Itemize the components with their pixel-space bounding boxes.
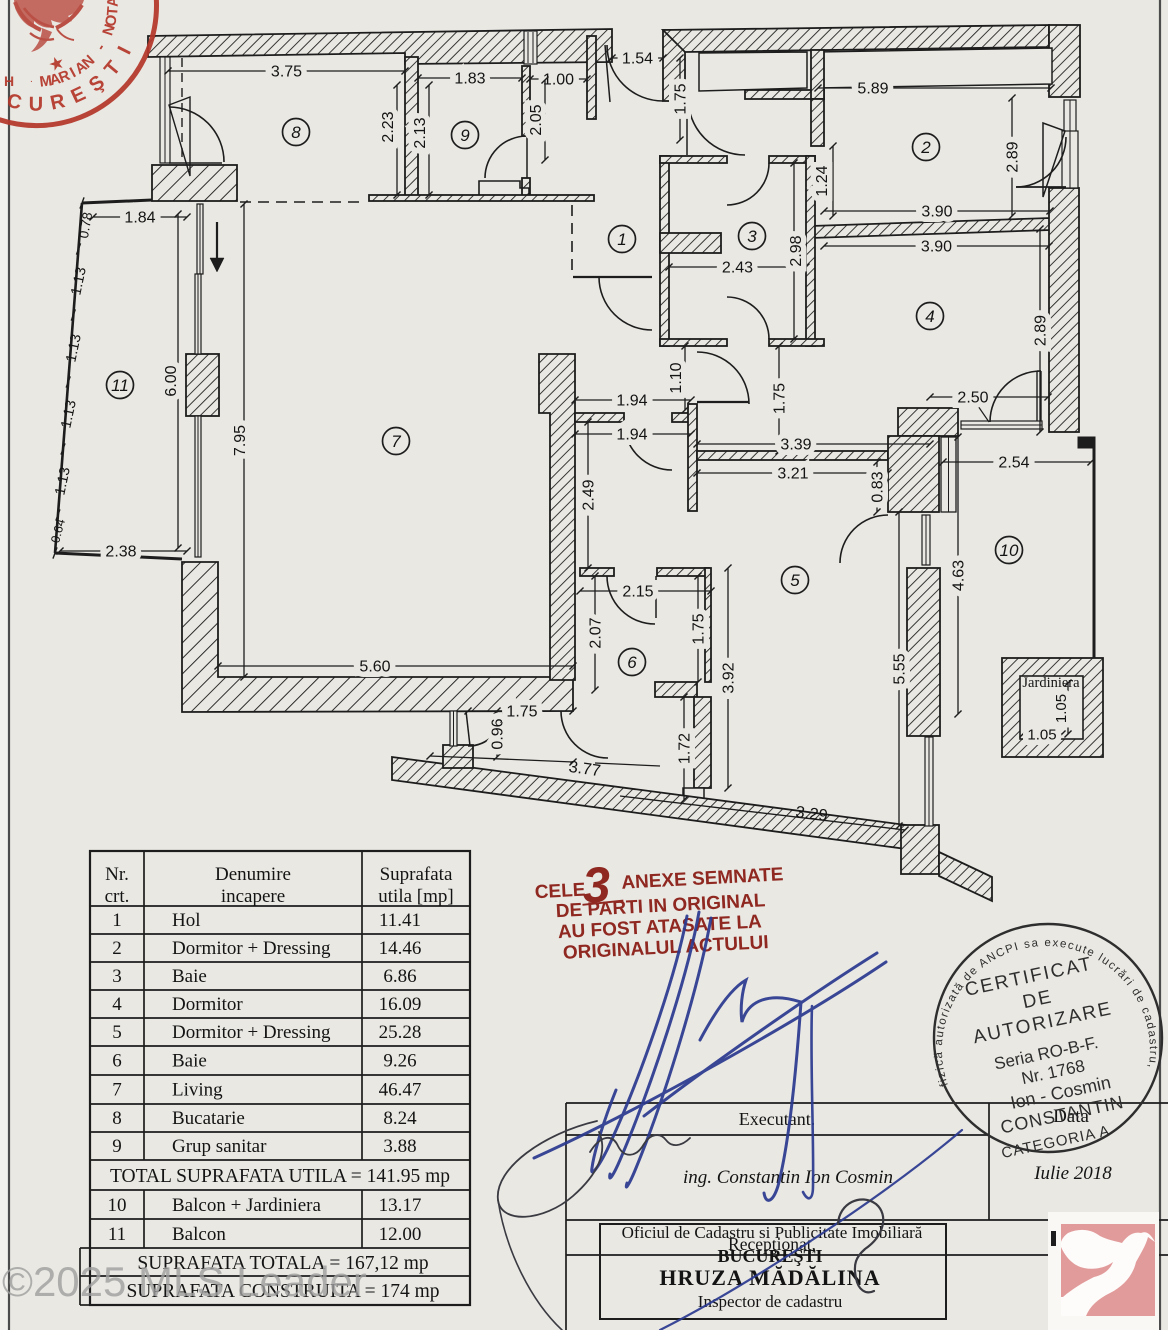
svg-text:Denumire: Denumire [215,864,291,885]
svg-text:2.89: 2.89 [1005,141,1022,172]
svg-text:1.24: 1.24 [814,165,831,196]
svg-text:1.75: 1.75 [506,704,537,721]
svg-text:crt.: crt. [105,886,130,907]
svg-text:ANEXE SEMNATE: ANEXE SEMNATE [621,864,784,893]
svg-text:1: 1 [617,230,626,249]
svg-text:1.13: 1.13 [58,399,80,430]
svg-text:DE: DE [1021,986,1055,1013]
svg-text:11: 11 [111,376,129,395]
svg-text:.: . [30,74,33,85]
svg-text:2.43: 2.43 [722,260,753,277]
svg-text:Jardiniera: Jardiniera [1022,675,1080,691]
svg-text:1: 1 [112,910,122,931]
svg-text:1.05: 1.05 [1027,727,1056,744]
svg-text:3.39: 3.39 [780,437,811,454]
svg-text:2.38: 2.38 [105,544,136,561]
svg-text:1.00: 1.00 [543,72,574,89]
svg-text:9.26: 9.26 [383,1051,416,1072]
svg-text:4: 4 [112,994,122,1015]
svg-text:7: 7 [112,1080,122,1101]
svg-text:2.49: 2.49 [581,479,598,510]
svg-text:3.75: 3.75 [271,64,302,81]
svg-text:0.64: 0.64 [48,517,68,544]
svg-text:1.94: 1.94 [616,427,647,444]
svg-text:5.89: 5.89 [857,81,888,98]
svg-text:1.13: 1.13 [68,266,90,297]
svg-text:0.78: 0.78 [76,211,95,239]
svg-text:2.13: 2.13 [412,117,429,148]
svg-text:8: 8 [112,1108,122,1129]
svg-text:8: 8 [291,123,301,142]
svg-text:5: 5 [790,571,800,590]
svg-text:Suprafata: Suprafata [380,864,453,885]
svg-text:Baie: Baie [172,1051,207,1072]
svg-text:1.13: 1.13 [52,466,74,497]
svg-text:10: 10 [1000,541,1019,560]
svg-text:6: 6 [627,653,637,672]
svg-text:1.75: 1.75 [772,383,789,414]
svg-text:Balcon: Balcon [172,1224,226,1245]
svg-text:Bucatarie: Bucatarie [172,1108,245,1129]
svg-text:utila [mp]: utila [mp] [378,886,453,907]
svg-text:6.00: 6.00 [163,365,180,396]
svg-text:T: T [100,57,125,80]
svg-text:Balcon + Jardiniera: Balcon + Jardiniera [172,1195,322,1216]
svg-text:1.84: 1.84 [124,210,155,227]
svg-text:0.83: 0.83 [870,471,887,502]
svg-text:2.98: 2.98 [788,235,805,266]
svg-text:Nr.: Nr. [105,864,129,885]
svg-text:2: 2 [112,938,122,959]
svg-text:Living: Living [172,1080,223,1101]
svg-text:1.75: 1.75 [691,613,708,644]
svg-text:4.63: 4.63 [951,560,968,591]
svg-text:E: E [68,83,89,109]
svg-text:Grup sanitar: Grup sanitar [172,1136,267,1157]
svg-text:7: 7 [391,432,401,451]
svg-text:1.94: 1.94 [616,393,647,410]
svg-text:incapere: incapere [221,886,285,907]
svg-text:5.60: 5.60 [359,659,390,676]
svg-text:Hol: Hol [172,910,201,931]
svg-text:TOTAL SUPRAFATA UTILA = 141.95: TOTAL SUPRAFATA UTILA = 141.95 mp [110,1166,450,1187]
svg-text:2.54: 2.54 [998,455,1029,472]
svg-text:4: 4 [925,307,934,326]
svg-text:Dormitor + Dressing: Dormitor + Dressing [172,938,331,959]
svg-text:H: H [4,73,14,89]
svg-text:I: I [114,43,136,58]
svg-text:1.13: 1.13 [63,333,85,364]
svg-text:6.86: 6.86 [383,966,416,987]
svg-text:9: 9 [460,126,470,145]
svg-text:Iulie 2018: Iulie 2018 [1033,1163,1112,1184]
svg-text:9: 9 [112,1136,122,1157]
svg-text:Inspector de cadastru: Inspector de cadastru [698,1292,843,1311]
svg-text:BUCUREŞTI: BUCUREŞTI [717,1246,822,1266]
svg-text:3.21: 3.21 [777,466,808,483]
svg-text:8.24: 8.24 [383,1108,417,1129]
svg-text:7.95: 7.95 [232,425,249,456]
svg-text:Ş: Ş [85,71,109,97]
svg-text:2.23: 2.23 [380,111,397,142]
svg-text:1.72: 1.72 [677,733,694,764]
svg-text:1.54: 1.54 [622,51,653,68]
svg-text:HRUZA MĂDĂLINA: HRUZA MĂDĂLINA [659,1265,880,1290]
svg-text:6: 6 [112,1051,122,1072]
svg-text:1.83: 1.83 [454,71,485,88]
svg-text:25.28: 25.28 [379,1022,422,1043]
svg-text:1.75: 1.75 [673,83,690,114]
svg-text:2: 2 [920,138,931,157]
svg-text:5.55: 5.55 [892,653,909,684]
svg-text:U: U [29,94,44,116]
svg-text:2.07: 2.07 [588,617,605,648]
svg-text:3.92: 3.92 [721,662,738,693]
svg-text:©2025 MLS Leader: ©2025 MLS Leader [2,1258,367,1305]
svg-text:3.90: 3.90 [921,204,952,221]
svg-text:3: 3 [112,966,122,987]
svg-text:46.47: 46.47 [379,1080,422,1101]
svg-text:11.41: 11.41 [379,910,421,931]
svg-text:11: 11 [108,1224,126,1245]
svg-text:5: 5 [112,1022,122,1043]
svg-text:12.00: 12.00 [379,1224,422,1245]
svg-text:Dormitor + Dressing: Dormitor + Dressing [172,1022,331,1043]
svg-text:3.77: 3.77 [568,758,602,780]
svg-text:2.89: 2.89 [1033,315,1050,346]
svg-text:2.50: 2.50 [957,390,988,407]
svg-text:R: R [48,90,67,115]
svg-text:-: - [92,40,109,53]
svg-text:3: 3 [747,227,757,246]
svg-text:2.15: 2.15 [622,584,653,601]
svg-text:13.17: 13.17 [379,1195,422,1216]
svg-text:1.10: 1.10 [668,362,685,393]
svg-text:Executant.: Executant. [739,1109,815,1129]
svg-text:3.90: 3.90 [921,239,952,256]
svg-text:0.96: 0.96 [490,718,507,749]
svg-text:3.88: 3.88 [383,1136,416,1157]
svg-text:1.05: 1.05 [1053,694,1070,723]
svg-text:A: A [104,0,122,7]
svg-text:2.05: 2.05 [528,104,545,135]
svg-text:ing. Constantin Ion Cosmin: ing. Constantin Ion Cosmin [683,1167,893,1188]
svg-text:16.09: 16.09 [379,994,422,1015]
svg-text:14.46: 14.46 [379,938,422,959]
svg-text:Baie: Baie [172,966,207,987]
svg-text:Dormitor: Dormitor [172,994,243,1015]
svg-text:10: 10 [108,1195,127,1216]
